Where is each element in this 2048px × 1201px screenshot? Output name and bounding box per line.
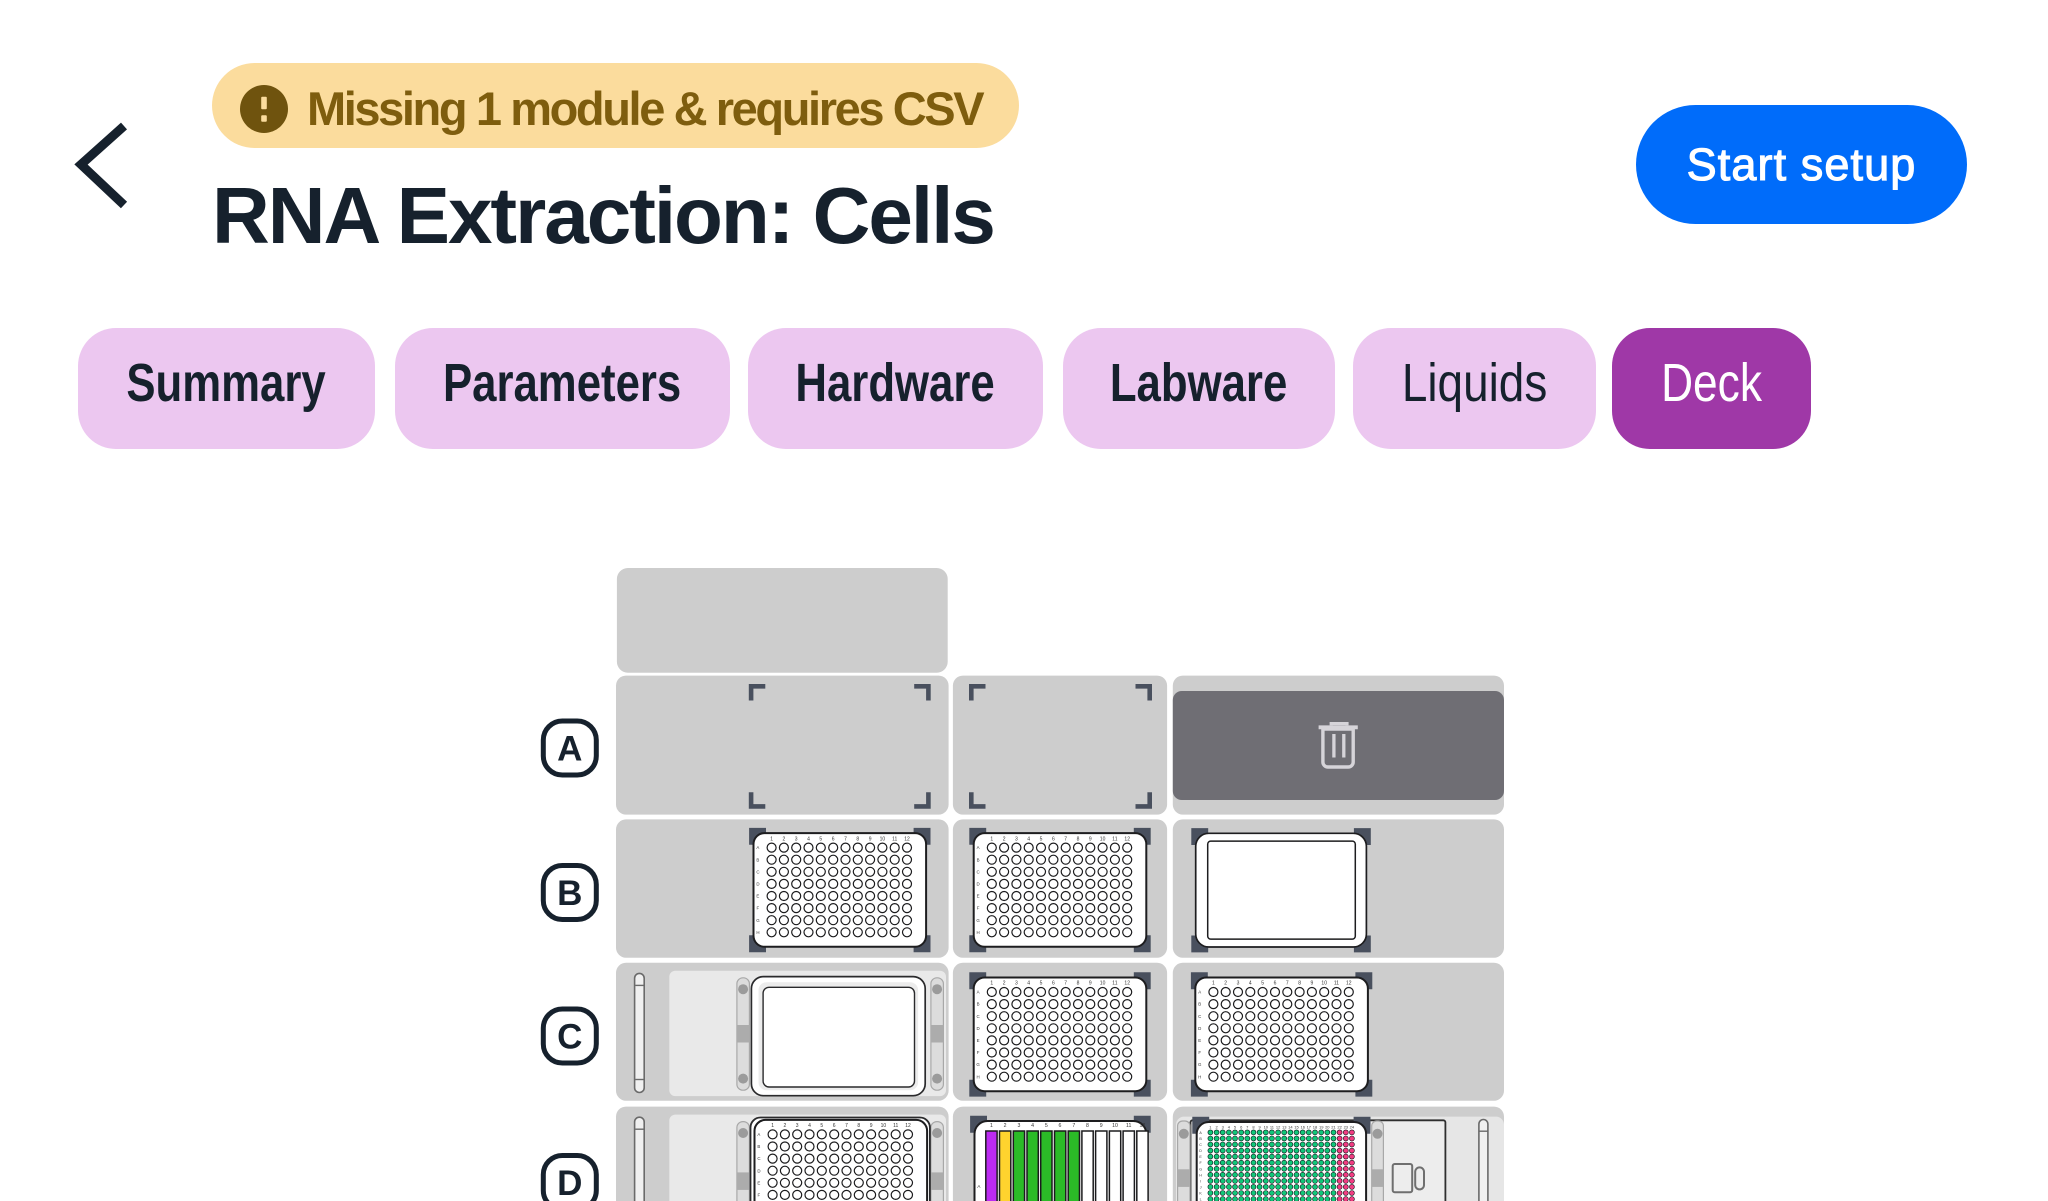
svg-text:D: D	[557, 1164, 582, 1201]
svg-text:21: 21	[1331, 1124, 1336, 1129]
svg-text:20: 20	[1325, 1124, 1330, 1129]
svg-text:10: 10	[1264, 1124, 1269, 1129]
svg-text:11: 11	[1126, 1123, 1131, 1129]
svg-text:22: 22	[1337, 1124, 1342, 1129]
svg-text:L: L	[1200, 1198, 1202, 1201]
svg-text:8: 8	[1086, 1123, 1089, 1129]
svg-text:I: I	[1200, 1179, 1201, 1183]
svg-text:D: D	[1199, 1149, 1202, 1153]
svg-text:9: 9	[1100, 1123, 1103, 1129]
svg-text:19: 19	[1319, 1124, 1324, 1129]
svg-text:J: J	[1200, 1185, 1202, 1189]
svg-text:6: 6	[1059, 1123, 1062, 1129]
svg-text:C: C	[557, 1018, 582, 1057]
svg-text:A: A	[557, 730, 582, 769]
svg-text:15: 15	[1294, 1124, 1299, 1129]
svg-text:16: 16	[1300, 1124, 1305, 1129]
svg-text:7: 7	[1072, 1123, 1075, 1129]
svg-text:5: 5	[1045, 1123, 1048, 1129]
svg-text:H: H	[1199, 1173, 1202, 1177]
svg-text:1: 1	[990, 1123, 993, 1129]
svg-text:2: 2	[1004, 1123, 1007, 1129]
svg-text:18: 18	[1313, 1124, 1318, 1129]
svg-text:14: 14	[1288, 1124, 1293, 1129]
svg-text:24: 24	[1350, 1124, 1355, 1129]
svg-text:12: 12	[1140, 1123, 1146, 1129]
svg-text:23: 23	[1344, 1124, 1349, 1129]
svg-text:C: C	[1199, 1143, 1202, 1147]
svg-text:12: 12	[1276, 1124, 1281, 1129]
svg-text:13: 13	[1282, 1124, 1287, 1129]
svg-text:B: B	[557, 874, 582, 913]
svg-text:17: 17	[1307, 1124, 1312, 1129]
svg-text:4: 4	[1031, 1123, 1034, 1129]
svg-text:3: 3	[1017, 1123, 1020, 1129]
svg-text:G: G	[1199, 1167, 1202, 1171]
svg-text:10: 10	[1112, 1123, 1118, 1129]
